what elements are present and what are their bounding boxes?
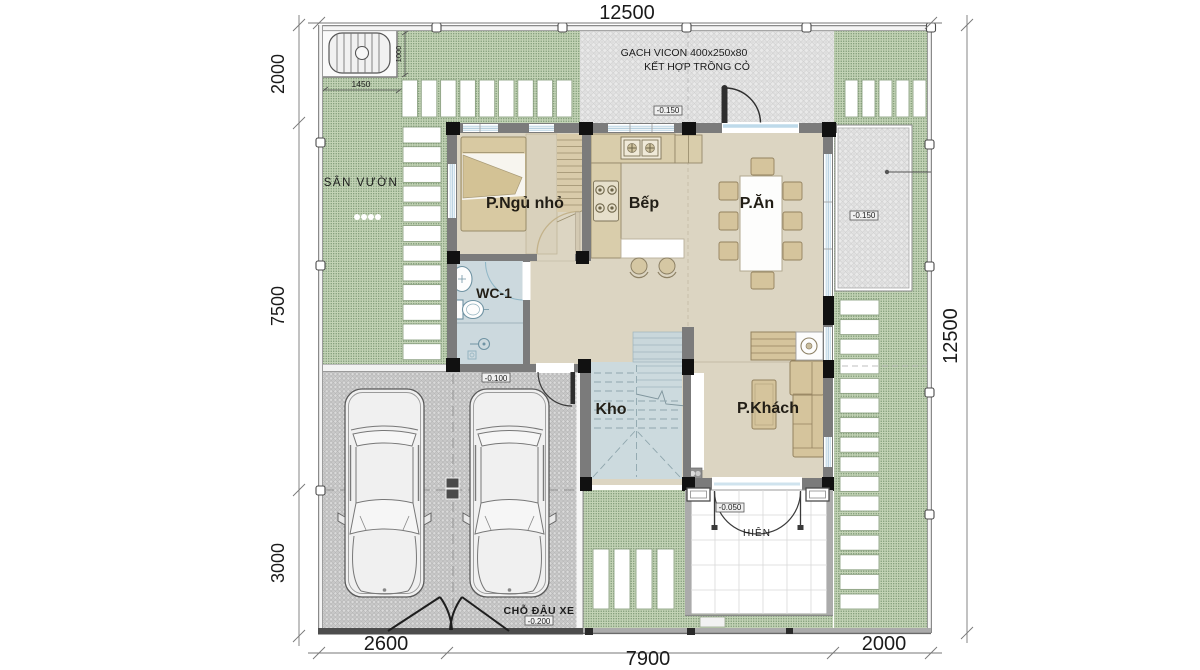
svg-text:-0.150: -0.150 — [657, 106, 680, 115]
svg-text:3000: 3000 — [268, 543, 288, 583]
svg-text:-0.200: -0.200 — [528, 617, 551, 626]
svg-text:2600: 2600 — [364, 633, 409, 655]
svg-text:12500: 12500 — [599, 2, 655, 24]
svg-text:7500: 7500 — [268, 286, 288, 326]
svg-text:-0.150: -0.150 — [853, 211, 876, 220]
svg-text:Kho: Kho — [595, 401, 626, 418]
svg-text:SÂN VƯỜN: SÂN VƯỜN — [324, 176, 399, 189]
svg-text:P.Ăn: P.Ăn — [740, 193, 774, 212]
svg-text:7900: 7900 — [626, 648, 671, 670]
svg-text:P.Khách: P.Khách — [737, 400, 799, 417]
svg-text:GẠCH VICON 400x250x80: GẠCH VICON 400x250x80 — [621, 47, 748, 59]
svg-text:HIÊN: HIÊN — [743, 526, 771, 539]
svg-text:1000: 1000 — [394, 46, 403, 63]
svg-text:KẾT HỢP TRỒNG CỎ: KẾT HỢP TRỒNG CỎ — [644, 60, 750, 73]
svg-text:P.Ngủ nhỏ: P.Ngủ nhỏ — [486, 195, 564, 212]
svg-text:CHỖ ĐẬU XE: CHỖ ĐẬU XE — [504, 604, 575, 617]
svg-text:Bếp: Bếp — [629, 195, 659, 212]
svg-text:1450: 1450 — [352, 79, 371, 89]
svg-text:-0.100: -0.100 — [485, 374, 508, 383]
svg-text:2000: 2000 — [862, 633, 907, 655]
svg-text:12500: 12500 — [940, 308, 962, 364]
svg-text:2000: 2000 — [268, 54, 288, 94]
svg-text:WC-1: WC-1 — [476, 285, 512, 301]
svg-text:-0.050: -0.050 — [719, 503, 742, 512]
